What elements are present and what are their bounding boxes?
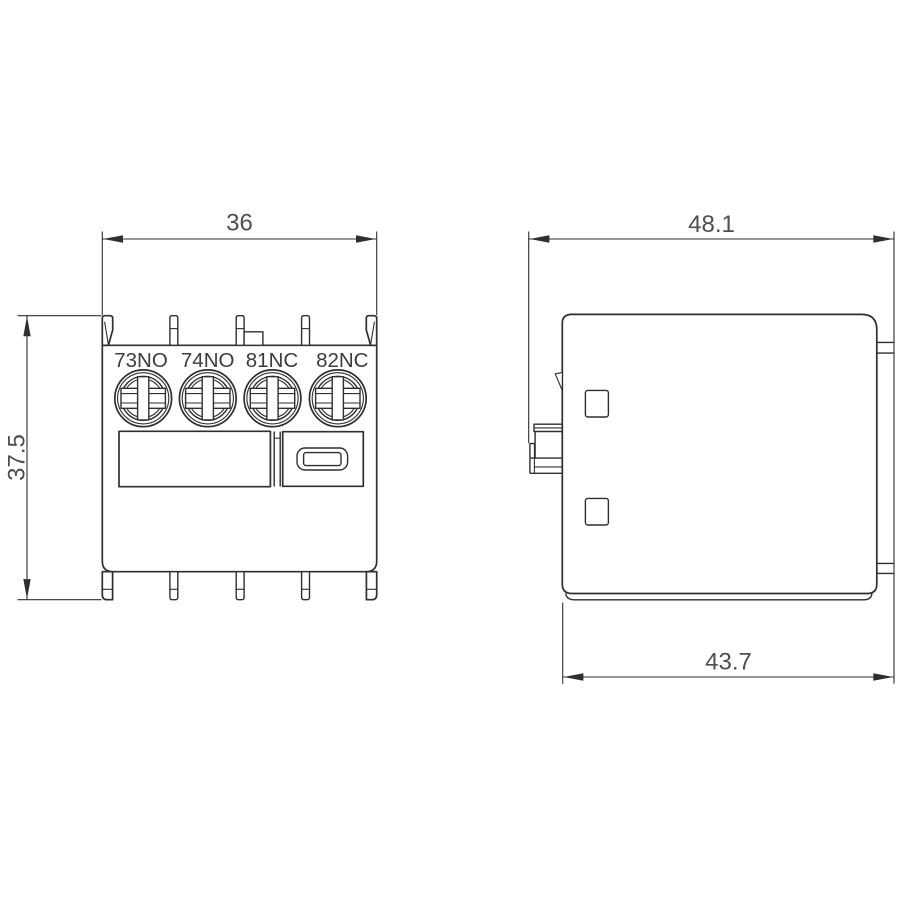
bottom-prong-3 bbox=[236, 572, 244, 600]
dimension-front-width: 36 bbox=[226, 210, 253, 237]
accessory-window bbox=[283, 432, 364, 487]
terminal-screw-3 bbox=[244, 370, 301, 427]
top-tab-3-step bbox=[244, 332, 263, 346]
front-windows bbox=[119, 431, 363, 486]
latch-hook bbox=[555, 373, 562, 391]
side-body bbox=[555, 314, 894, 599]
bottom-prong-4 bbox=[302, 572, 310, 600]
dimension-side-width: 48.1 bbox=[688, 211, 735, 238]
dimension-side-depth: 43.7 bbox=[705, 649, 752, 676]
top-tab-2 bbox=[170, 316, 178, 346]
front-dimension-width: 36 bbox=[102, 210, 376, 316]
arrowhead-left bbox=[530, 235, 550, 242]
terminal-screw-4 bbox=[309, 370, 366, 427]
terminal-screw-2 bbox=[179, 370, 236, 427]
terminal-screw-1 bbox=[115, 370, 172, 427]
arrowhead-left bbox=[103, 235, 123, 242]
side-body-outline bbox=[562, 314, 877, 593]
terminal-label-81nc: 81NC bbox=[246, 349, 299, 372]
side-dimension-depth: 43.7 bbox=[563, 603, 894, 684]
din-rail-clip bbox=[530, 424, 563, 473]
dimension-front-height: 37.5 bbox=[4, 434, 31, 481]
front-view: 36 37.5 bbox=[4, 210, 377, 600]
arrowhead-left bbox=[564, 673, 584, 680]
top-tab-3 bbox=[236, 316, 244, 346]
label-window bbox=[119, 431, 270, 486]
dimensional-drawing: 36 37.5 bbox=[0, 0, 900, 900]
terminal-label-73no: 73NO bbox=[114, 349, 168, 372]
side-body-foot bbox=[566, 594, 872, 600]
terminal-label-82nc: 82NC bbox=[316, 349, 369, 372]
front-dimension-height: 37.5 bbox=[4, 316, 102, 600]
arrowhead-right bbox=[356, 235, 376, 242]
top-tab-4 bbox=[302, 316, 310, 346]
side-view: 48.1 bbox=[529, 211, 894, 684]
bottom-prong-1 bbox=[102, 572, 112, 600]
arrowhead-bottom bbox=[23, 579, 30, 599]
arrowhead-right bbox=[873, 673, 893, 680]
bottom-prong-2 bbox=[170, 572, 178, 600]
arrowhead-top bbox=[23, 317, 30, 337]
bottom-prong-5 bbox=[366, 572, 376, 600]
arrowhead-right bbox=[873, 235, 893, 242]
terminal-label-74no: 74NO bbox=[181, 349, 235, 372]
